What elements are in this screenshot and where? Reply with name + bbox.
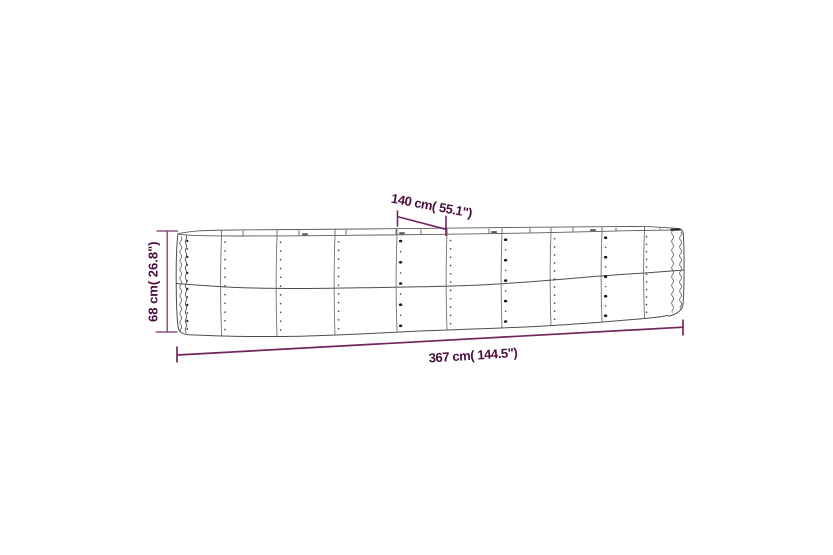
svg-text:68 cm( 26.8"): 68 cm( 26.8") (146, 241, 161, 322)
